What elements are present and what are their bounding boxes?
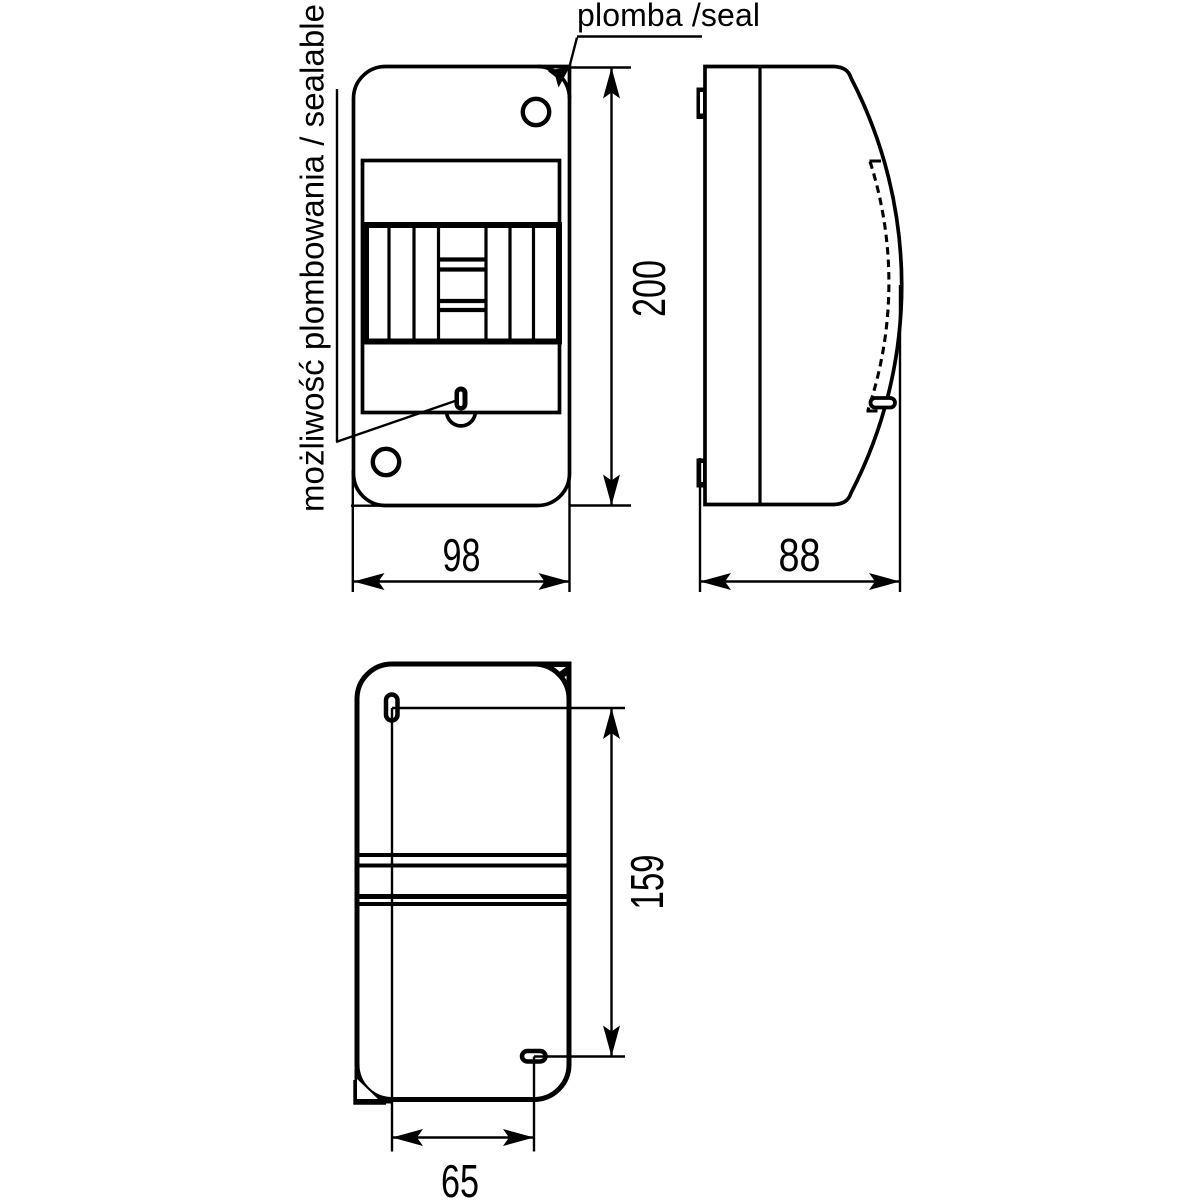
- svg-text:98: 98: [443, 529, 481, 581]
- svg-text:możliwość plombowania / sealab: możliwość plombowania / sealable: [294, 4, 331, 512]
- svg-text:200: 200: [623, 260, 675, 317]
- svg-text:65: 65: [441, 1155, 479, 1200]
- svg-text:88: 88: [779, 529, 821, 581]
- svg-text:plomba /seal: plomba /seal: [577, 0, 760, 33]
- svg-text:159: 159: [621, 855, 673, 910]
